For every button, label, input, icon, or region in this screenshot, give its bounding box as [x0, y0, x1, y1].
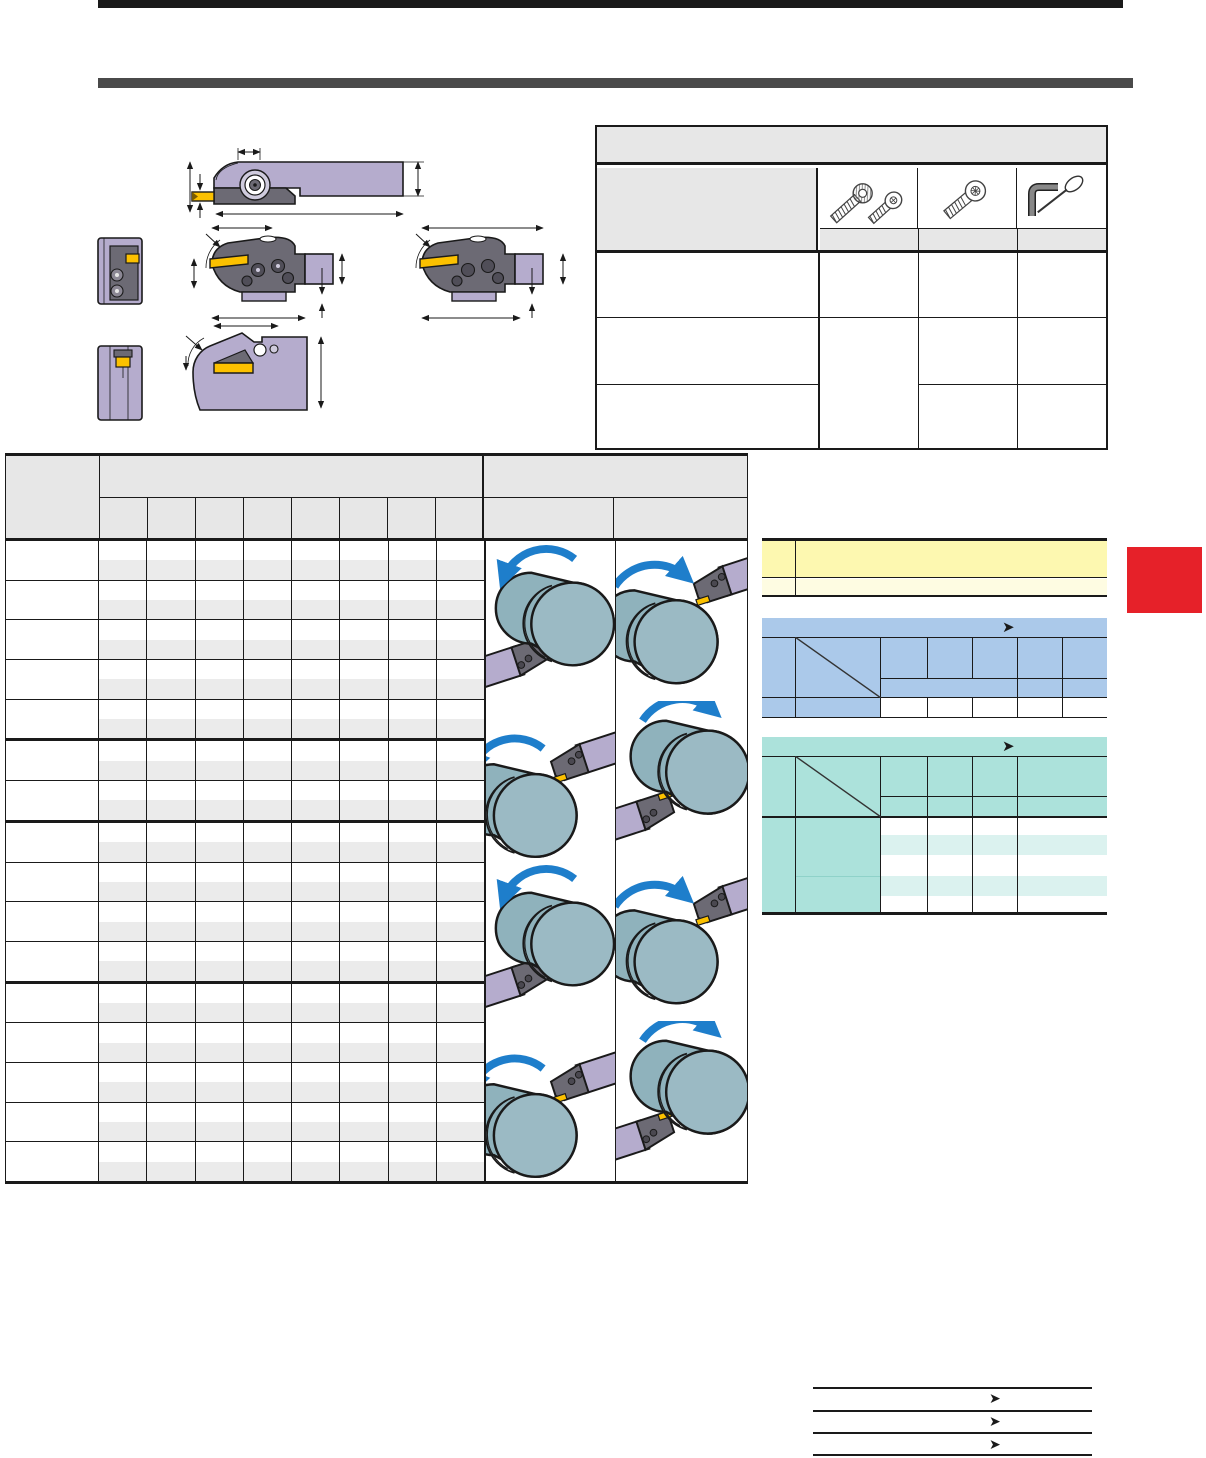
- spec-data-cell: [340, 741, 388, 780]
- spec-data-cell: [292, 1023, 340, 1062]
- spec-data-cell: [340, 1023, 388, 1062]
- spec-data-cell: [340, 781, 388, 820]
- spec-data-cell: [437, 984, 484, 1023]
- spec-data-cell: [196, 1063, 244, 1102]
- spec-data-cell: [292, 660, 340, 699]
- spec-data-cell: [437, 781, 484, 820]
- direction-arrow-icon: ➤: [1002, 738, 1015, 756]
- spec-subheader-cell: [100, 498, 148, 538]
- spec-data-cell: [340, 984, 388, 1023]
- footer-arrow-icon: ➤: [989, 1390, 1001, 1407]
- spec-row-label-cell: [6, 541, 99, 580]
- spec-data-cell: [389, 781, 437, 820]
- spec-data-cell: [147, 581, 195, 620]
- spare-parts-table: [595, 125, 1108, 450]
- application-illustration-left: [486, 861, 615, 1021]
- spec-row-label-cell: [6, 942, 99, 981]
- modular-head-side-view-right: [416, 228, 563, 318]
- spec-data-cell: [99, 620, 147, 659]
- spec-data-cell: [340, 620, 388, 659]
- spec-data-cell: [389, 984, 437, 1023]
- spec-data-cell: [437, 581, 484, 620]
- spec-data-cell: [292, 741, 340, 780]
- spec-data-cell: [340, 902, 388, 941]
- spec-data-cell: [292, 1103, 340, 1142]
- spec-subheader-cell: [292, 498, 340, 538]
- application-subheader-left: [484, 498, 614, 538]
- spec-data-cell: [244, 1063, 292, 1102]
- teal-stripe-row: [880, 876, 1107, 896]
- spec-data-cell: [437, 541, 484, 580]
- spec-data-cell: [99, 541, 147, 580]
- spec-data-cell: [292, 541, 340, 580]
- spec-row-label-cell: [6, 741, 99, 780]
- spec-data-cell: [244, 902, 292, 941]
- spec-data-cell: [437, 660, 484, 699]
- spec-data-cell: [196, 984, 244, 1023]
- spec-data-cell: [99, 1142, 147, 1181]
- spec-data-cell: [99, 863, 147, 902]
- spec-data-cell: [389, 1103, 437, 1142]
- blue-data-row: [880, 698, 1107, 718]
- spec-row-label-cell: [6, 984, 99, 1023]
- spec-row-label-cell: [6, 1142, 99, 1181]
- spec-row-label-cell: [6, 700, 99, 739]
- footer-index-rule: [813, 1432, 1092, 1434]
- spare-parts-col-tools: [1017, 168, 1106, 228]
- spec-row-label-cell: [6, 1103, 99, 1142]
- spec-data-cell: [147, 942, 195, 981]
- spec-data-cell: [389, 741, 437, 780]
- spec-table-body: [6, 541, 747, 1181]
- spec-data-cell: [389, 902, 437, 941]
- footer-index-rule: [813, 1387, 1092, 1389]
- spare-parts-subheader: [820, 228, 1106, 250]
- spec-data-cell: [99, 581, 147, 620]
- dimension-columns-merged-header: [100, 456, 484, 497]
- spec-data-cell: [292, 863, 340, 902]
- application-subheader-right: [614, 498, 747, 538]
- page-index-tab: [1127, 547, 1202, 613]
- top-rule: [98, 0, 1123, 8]
- spec-data-cell: [389, 620, 437, 659]
- spec-row-group: [6, 700, 484, 742]
- spec-row-label-cell: [6, 781, 99, 820]
- spec-data-cell: [99, 741, 147, 780]
- selection-table-teal: ➤: [762, 737, 1107, 915]
- spec-row-label-cell: [6, 660, 99, 699]
- spec-data-cell: [340, 1103, 388, 1142]
- spec-data-cell: [292, 581, 340, 620]
- application-illustration-right: [616, 1021, 747, 1181]
- spec-data-cell: [244, 541, 292, 580]
- spec-data-cell: [437, 902, 484, 941]
- spec-data-cell: [99, 984, 147, 1023]
- spec-data-cell: [147, 541, 195, 580]
- spec-data-cell: [340, 700, 388, 739]
- spec-row-group: [6, 1103, 484, 1143]
- spec-header-sub-row: [100, 498, 747, 538]
- spec-data-cell: [196, 1023, 244, 1062]
- spec-data-cell: [389, 1142, 437, 1181]
- spec-data-cell: [99, 942, 147, 981]
- spec-data-cell: [437, 700, 484, 739]
- application-illustration-right: [616, 701, 747, 861]
- spec-data-cell: [340, 942, 388, 981]
- diagonal-split-cell: [795, 756, 881, 817]
- spec-row-group: [6, 984, 484, 1024]
- spec-data-cell: [244, 620, 292, 659]
- spec-data-cell: [340, 863, 388, 902]
- spec-data-cell: [196, 541, 244, 580]
- spec-data-cell: [292, 942, 340, 981]
- spare-parts-col-torx: [918, 168, 1017, 228]
- spec-row-group: [6, 942, 484, 984]
- note-row-2: [762, 579, 1107, 595]
- spare-parts-col-screws: [820, 168, 918, 228]
- spec-header-label-cell: [6, 456, 100, 538]
- spec-rows-area: [6, 541, 484, 1181]
- direction-arrow-icon: ➤: [1002, 619, 1015, 637]
- footer-index-rule: [813, 1410, 1092, 1412]
- spec-data-cell: [340, 541, 388, 580]
- spec-data-cell: [340, 581, 388, 620]
- spec-data-cell: [292, 984, 340, 1023]
- section-title-bar: [98, 78, 1133, 88]
- spec-data-cell: [196, 1142, 244, 1181]
- teal-data-area: [880, 817, 1107, 912]
- spec-data-cell: [244, 1142, 292, 1181]
- spare-parts-header-band: [597, 127, 1106, 165]
- spec-data-cell: [437, 942, 484, 981]
- spec-data-cell: [99, 1023, 147, 1062]
- spec-data-cell: [389, 823, 437, 862]
- modular-head-side-view-left: [194, 228, 342, 318]
- spec-row-label-cell: [6, 1023, 99, 1062]
- spec-data-cell: [147, 660, 195, 699]
- spec-row-group: [6, 581, 484, 621]
- spec-row-label-cell: [6, 620, 99, 659]
- spec-data-cell: [437, 1142, 484, 1181]
- spec-data-cell: [147, 863, 195, 902]
- spec-data-cell: [244, 700, 292, 739]
- spec-data-cell: [99, 902, 147, 941]
- spec-data-cell: [340, 823, 388, 862]
- spec-row-group: [6, 902, 484, 942]
- spec-data-cell: [292, 620, 340, 659]
- spec-data-cell: [389, 660, 437, 699]
- spec-data-cell: [147, 984, 195, 1023]
- spec-row-label-cell: [6, 902, 99, 941]
- spec-table-header: [6, 456, 747, 541]
- application-illustration-left: [486, 541, 615, 701]
- spec-data-cell: [437, 1023, 484, 1062]
- spec-subheader-cell: [196, 498, 244, 538]
- note-table-yellow: [762, 538, 1107, 597]
- spec-row-group: [6, 541, 484, 581]
- spec-data-cell: [437, 1103, 484, 1142]
- spec-data-cell: [244, 984, 292, 1023]
- spec-data-cell: [389, 942, 437, 981]
- head-front-view-lower: [98, 346, 142, 420]
- spec-data-cell: [196, 660, 244, 699]
- spec-data-cell: [389, 1063, 437, 1102]
- spec-data-cell: [437, 823, 484, 862]
- application-merged-header: [484, 456, 747, 497]
- application-column-left-hand: [484, 541, 615, 1181]
- application-illustration-right: [616, 541, 747, 701]
- spec-data-cell: [196, 902, 244, 941]
- application-column-right-hand: [615, 541, 747, 1181]
- spec-data-cell: [244, 863, 292, 902]
- spec-data-cell: [292, 902, 340, 941]
- spec-row-group: [6, 823, 484, 863]
- spec-data-cell: [437, 1063, 484, 1102]
- spec-data-cell: [147, 823, 195, 862]
- spec-row-group: [6, 1063, 484, 1103]
- spec-data-cell: [244, 942, 292, 981]
- spec-header-right: [100, 456, 747, 538]
- head-front-view-upper: [98, 238, 142, 304]
- spec-data-cell: [147, 902, 195, 941]
- spec-subheader-cell: [388, 498, 436, 538]
- spec-data-cell: [244, 1103, 292, 1142]
- spec-data-cell: [437, 620, 484, 659]
- spec-data-cell: [244, 1023, 292, 1062]
- footer-arrow-icon: ➤: [989, 1436, 1001, 1453]
- spec-data-cell: [244, 581, 292, 620]
- spec-row-label-cell: [6, 823, 99, 862]
- technical-drawings: [90, 128, 585, 446]
- application-illustration-left: [486, 1021, 615, 1181]
- spec-subheader-cell: [340, 498, 388, 538]
- spec-data-cell: [196, 741, 244, 780]
- spec-data-cell: [196, 581, 244, 620]
- spec-data-cell: [99, 823, 147, 862]
- spec-subheader-cell: [244, 498, 292, 538]
- spec-data-cell: [389, 1023, 437, 1062]
- spec-row-group: [6, 620, 484, 660]
- spec-row-group: [6, 741, 484, 781]
- spec-data-cell: [292, 823, 340, 862]
- spec-data-cell: [244, 781, 292, 820]
- spec-data-cell: [147, 741, 195, 780]
- spec-data-cell: [437, 863, 484, 902]
- face-grooving-head-side-view: [186, 326, 321, 410]
- integral-holder-side-view: [190, 148, 424, 218]
- clamp-screws-icon: [823, 170, 915, 226]
- spec-row-group: [6, 1142, 484, 1181]
- spec-data-cell: [196, 863, 244, 902]
- spec-subheader-cell: [148, 498, 196, 538]
- hex-wrench-and-driver-icon: [1019, 170, 1105, 226]
- spec-data-cell: [196, 620, 244, 659]
- torx-screw-icon: [921, 170, 1013, 226]
- footer-index-rule: [813, 1454, 1092, 1456]
- spec-data-cell: [196, 823, 244, 862]
- spec-data-cell: [196, 1103, 244, 1142]
- spec-data-cell: [196, 781, 244, 820]
- spec-data-cell: [147, 1063, 195, 1102]
- spec-data-cell: [147, 781, 195, 820]
- spec-data-cell: [292, 1142, 340, 1181]
- spec-header-top-row: [100, 456, 747, 498]
- spec-data-cell: [340, 1063, 388, 1102]
- spare-parts-label-cell: [597, 168, 818, 250]
- footer-arrow-icon: ➤: [989, 1413, 1001, 1430]
- spec-data-cell: [389, 700, 437, 739]
- spec-data-cell: [292, 700, 340, 739]
- spec-row-label-cell: [6, 1063, 99, 1102]
- spec-data-cell: [292, 781, 340, 820]
- spec-data-cell: [147, 620, 195, 659]
- spec-data-cell: [99, 1103, 147, 1142]
- spec-data-cell: [292, 1063, 340, 1102]
- diagonal-split-cell: [795, 637, 881, 698]
- catalog-page: { "page": { "kind": "tool-catalog-page",…: [0, 0, 1206, 1458]
- spec-data-cell: [99, 660, 147, 699]
- spec-data-cell: [147, 1142, 195, 1181]
- spec-data-cell: [196, 942, 244, 981]
- selection-table-blue: ➤: [762, 618, 1107, 718]
- spec-row-label-cell: [6, 581, 99, 620]
- spec-subheader-cell: [436, 498, 484, 538]
- spec-row-label-cell: [6, 863, 99, 902]
- spec-data-cell: [389, 581, 437, 620]
- spec-data-cell: [99, 781, 147, 820]
- spec-data-cell: [196, 700, 244, 739]
- holder-specification-table: [5, 453, 748, 1184]
- spec-data-cell: [99, 700, 147, 739]
- spec-row-group: [6, 863, 484, 903]
- spec-data-cell: [340, 660, 388, 699]
- teal-stripe-row: [880, 835, 1107, 855]
- spec-data-cell: [244, 660, 292, 699]
- spec-row-group: [6, 660, 484, 700]
- spec-data-cell: [99, 1063, 147, 1102]
- spec-row-group: [6, 781, 484, 823]
- note-row-1: [762, 541, 1107, 578]
- spec-row-group: [6, 1023, 484, 1063]
- application-illustration-right: [616, 861, 747, 1021]
- spec-data-cell: [244, 741, 292, 780]
- spec-data-cell: [340, 1142, 388, 1181]
- spec-data-cell: [389, 863, 437, 902]
- spec-data-cell: [147, 700, 195, 739]
- spec-data-cell: [389, 541, 437, 580]
- spec-data-cell: [244, 823, 292, 862]
- application-illustration-left: [486, 701, 615, 861]
- spec-data-cell: [147, 1023, 195, 1062]
- spec-data-cell: [437, 741, 484, 780]
- spec-data-cell: [147, 1103, 195, 1142]
